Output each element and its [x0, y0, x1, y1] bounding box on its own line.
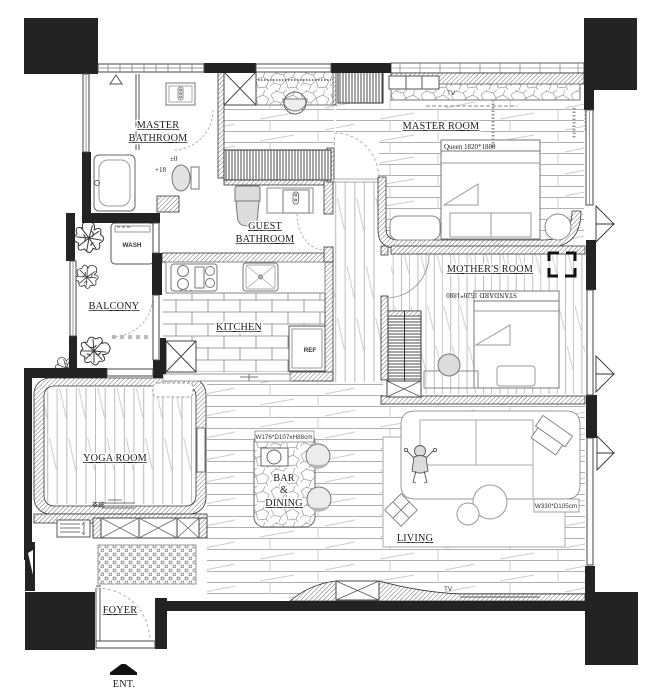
svg-text:REF: REF: [304, 347, 317, 354]
svg-text:GUEST: GUEST: [248, 221, 282, 232]
svg-text:BAR: BAR: [273, 473, 295, 484]
svg-text:LIVING: LIVING: [397, 533, 434, 544]
svg-text:TV: TV: [447, 90, 456, 97]
svg-text:BALCONY: BALCONY: [89, 301, 140, 312]
svg-text:W330*D105cm: W330*D105cm: [535, 503, 577, 510]
svg-text:STANDARD 1520*1880: STANDARD 1520*1880: [446, 291, 517, 299]
svg-text:Queen 1820*1880: Queen 1820*1880: [444, 143, 496, 151]
svg-text:BATHROOM: BATHROOM: [236, 234, 295, 245]
svg-text:BATHROOM: BATHROOM: [129, 133, 188, 144]
svg-text:MASTER ROOM: MASTER ROOM: [403, 121, 480, 132]
svg-text:MASTER: MASTER: [137, 120, 180, 131]
svg-text:KITCHEN: KITCHEN: [216, 322, 263, 333]
svg-text:DINING: DINING: [265, 498, 303, 509]
svg-text:±0: ±0: [170, 155, 178, 163]
svg-text:茶鏡: 茶鏡: [92, 501, 104, 509]
svg-text:FOYER: FOYER: [103, 605, 137, 616]
svg-text:WASH: WASH: [123, 242, 142, 249]
svg-text:YOGA ROOM: YOGA ROOM: [83, 453, 147, 464]
svg-text:W176*D107xH88cm: W176*D107xH88cm: [255, 434, 312, 441]
svg-text:+18: +18: [155, 166, 166, 174]
svg-text:&: &: [280, 485, 288, 496]
svg-text:TV: TV: [444, 586, 453, 593]
svg-text:MOTHER'S ROOM: MOTHER'S ROOM: [447, 264, 533, 275]
svg-text:ENT.: ENT.: [113, 679, 135, 690]
